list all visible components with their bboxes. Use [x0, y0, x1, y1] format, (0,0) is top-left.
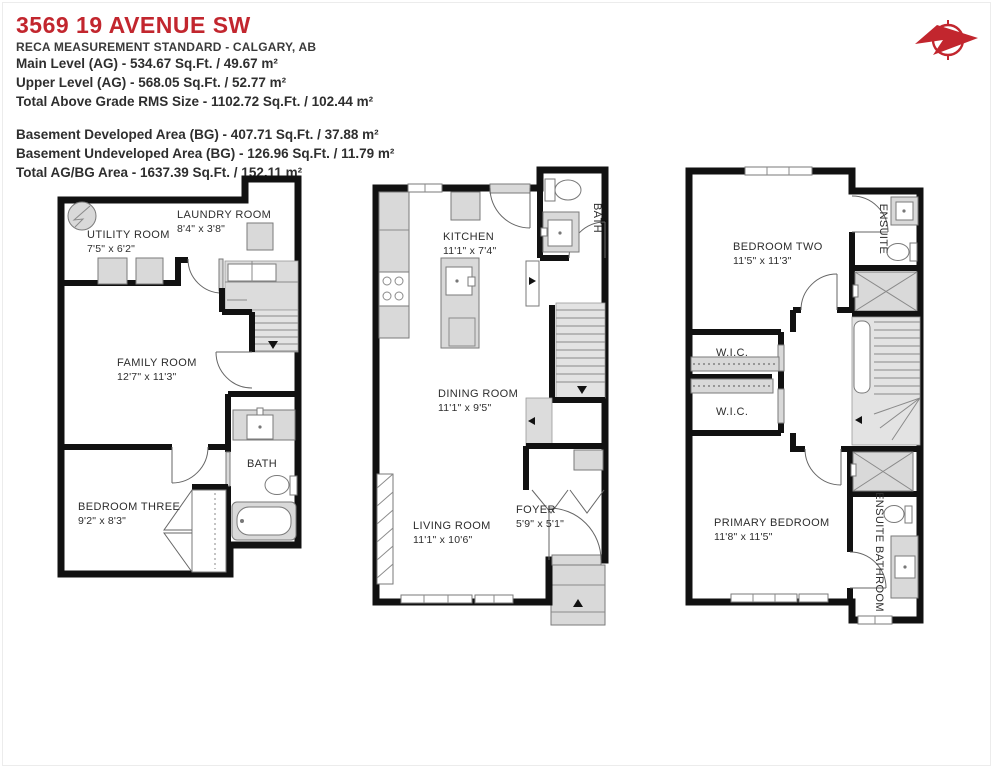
area-line-upper: Upper Level (AG) - 568.05 Sq.Ft. / 52.77… [16, 73, 394, 92]
room-label-family: FAMILY ROOM [117, 357, 197, 369]
utility-appliance [136, 258, 163, 284]
upper-level-floor-plan: BEDROOM TWO 11'5" x 11'3" W.I.C. W.I.C. … [680, 155, 928, 635]
shower [851, 452, 913, 491]
upper-stairs [852, 317, 920, 445]
room-label-laundry: LAUNDRY ROOM [177, 209, 271, 221]
area-line-bsmt-dev: Basement Developed Area (BG) - 407.71 Sq… [16, 125, 394, 144]
room-label-kitchen: KITCHEN [443, 231, 494, 243]
bath-vanity-sink [233, 408, 295, 440]
room-label-utility: UTILITY ROOM [87, 229, 170, 241]
fireplace [377, 474, 393, 584]
kitchen-cabinet [451, 192, 480, 220]
ensuite-vanity-sink [891, 197, 918, 225]
room-dims-laundry: 8'4" x 3'8" [177, 223, 225, 235]
toilet [884, 506, 912, 524]
washer-dryer [247, 223, 273, 250]
kitchen-counter [379, 192, 409, 338]
area-line-bsmt-undev: Basement Undeveloped Area (BG) - 126.96 … [16, 144, 394, 163]
room-dims-family: 12'7" x 11'3" [117, 371, 176, 383]
furnace-icon [68, 202, 96, 230]
room-label-ensuite-bathroom: ENSUITE BATHROOM [873, 492, 885, 612]
area-line-total-ag: Total Above Grade RMS Size - 1102.72 Sq.… [16, 92, 394, 111]
room-label-bath: BATH [247, 458, 277, 470]
compass-needle-icon [912, 12, 984, 68]
entry-porch [551, 565, 605, 625]
room-dims-living: 11'1" x 10'6" [413, 534, 472, 546]
measurement-standard-line: RECA MEASUREMENT STANDARD - CALGARY, AB [16, 40, 394, 54]
room-label-living: LIVING ROOM [413, 520, 491, 532]
room-label-foyer: FOYER [516, 504, 556, 516]
water-heater [98, 258, 127, 284]
pocket-door [226, 452, 230, 486]
room-label-main-bath: BATH [591, 203, 603, 233]
bathtub [232, 502, 296, 540]
room-label-primary-bedroom: PRIMARY BEDROOM [714, 517, 830, 529]
room-label-bedroom-three: BEDROOM THREE [78, 501, 180, 513]
toilet [545, 179, 581, 201]
bath-vanity-sink [541, 212, 579, 252]
basement-stairs [252, 310, 298, 352]
room-dims-bedroom-three: 9'2" x 8'3" [78, 515, 126, 527]
toilet [265, 476, 297, 496]
closet-door [778, 389, 784, 423]
basement-floor-plan: UTILITY ROOM 7'5" x 6'2" LAUNDRY ROOM 8'… [50, 170, 305, 585]
room-dims-dining: 11'1" x 9'5" [438, 402, 491, 414]
room-label-wic-2: W.I.C. [716, 406, 748, 418]
kitchen-island [441, 258, 479, 348]
room-dims-utility: 7'5" x 6'2" [87, 243, 135, 255]
header: 3569 19 AVENUE SW RECA MEASUREMENT STAND… [16, 12, 394, 182]
room-dims-foyer: 5'9" x 5'1" [516, 518, 564, 530]
room-label-dining: DINING ROOM [438, 388, 518, 400]
room-dims-primary-bedroom: 11'8" x 11'5" [714, 531, 773, 543]
room-label-ensuite: ENSUITE [877, 204, 889, 254]
room-label-wic-1: W.I.C. [716, 347, 748, 359]
closet-shelf [574, 450, 603, 470]
room-dims-kitchen: 11'1" x 7'4" [443, 245, 496, 257]
shower [853, 272, 917, 311]
main-level-floor-plan: KITCHEN 11'1" x 7'4" DINING ROOM 11'1" x… [360, 160, 615, 635]
area-line-main: Main Level (AG) - 534.67 Sq.Ft. / 49.67 … [16, 54, 394, 73]
room-label-bedroom-two: BEDROOM TWO [733, 241, 823, 253]
toilet [887, 243, 917, 261]
stove [379, 272, 409, 306]
bath-vanity-sink [891, 536, 918, 598]
stair-railing [854, 321, 870, 393]
room-dims-bedroom-two: 11'5" x 11'3" [733, 255, 792, 267]
page-title: 3569 19 AVENUE SW [16, 12, 394, 38]
